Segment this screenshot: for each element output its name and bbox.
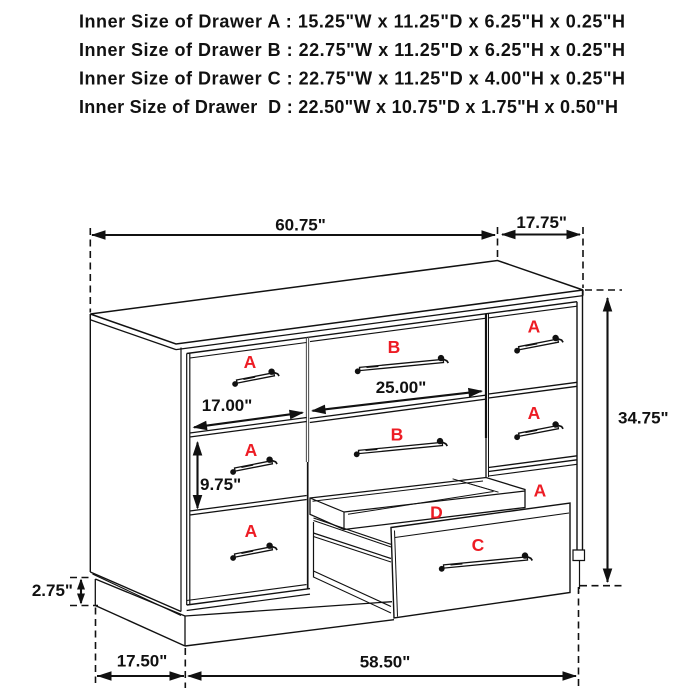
svg-text:60.75": 60.75" (275, 216, 326, 235)
svg-text:B: B (388, 337, 401, 357)
svg-text:Inner Size of Drawer B : 22.75: Inner Size of Drawer B : 22.75"W x 11.25… (79, 40, 625, 60)
svg-text:A: A (528, 403, 541, 423)
svg-text:17.50": 17.50" (117, 652, 168, 671)
svg-text:A: A (245, 440, 258, 460)
svg-text:B: B (391, 425, 404, 445)
svg-text:A: A (528, 317, 541, 337)
svg-text:Inner Size of Drawer D : 22.5: Inner Size of Drawer D : 22.50"W x 10.75… (79, 97, 618, 117)
svg-text:17.00": 17.00" (202, 396, 253, 415)
svg-text:17.75": 17.75" (516, 213, 567, 232)
svg-text:9.75": 9.75" (200, 475, 241, 494)
svg-text:A: A (534, 481, 547, 501)
svg-text:D: D (430, 503, 443, 523)
svg-text:2.75": 2.75" (32, 581, 73, 600)
svg-text:A: A (244, 352, 257, 372)
svg-text:A: A (245, 521, 258, 541)
svg-text:34.75": 34.75" (618, 409, 669, 428)
svg-text:58.50": 58.50" (360, 653, 411, 672)
svg-text:C: C (472, 535, 485, 555)
svg-text:Inner Size of Drawer A : 15.25: Inner Size of Drawer A : 15.25"W x 11.25… (79, 12, 625, 32)
svg-text:25.00": 25.00" (376, 378, 427, 397)
svg-text:Inner Size of Drawer C : 22.75: Inner Size of Drawer C : 22.75"W x 11.25… (79, 69, 625, 89)
